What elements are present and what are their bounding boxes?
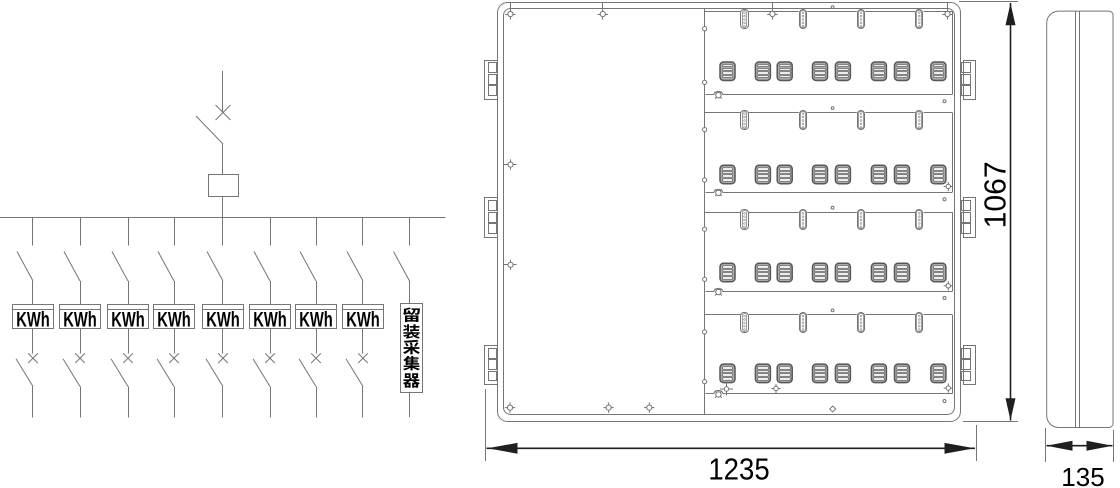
svg-text:KWh: KWh [63, 307, 97, 331]
svg-text:KWh: KWh [206, 307, 240, 331]
svg-text:1235: 1235 [708, 452, 769, 487]
svg-text:KWh: KWh [16, 307, 50, 331]
svg-text:KWh: KWh [111, 307, 145, 331]
svg-text:KWh: KWh [157, 307, 191, 331]
svg-text:1067: 1067 [978, 161, 1013, 228]
svg-text:135: 135 [1061, 462, 1104, 488]
svg-text:KWh: KWh [253, 307, 287, 331]
svg-text:KWh: KWh [299, 307, 333, 331]
svg-text:KWh: KWh [346, 307, 380, 331]
